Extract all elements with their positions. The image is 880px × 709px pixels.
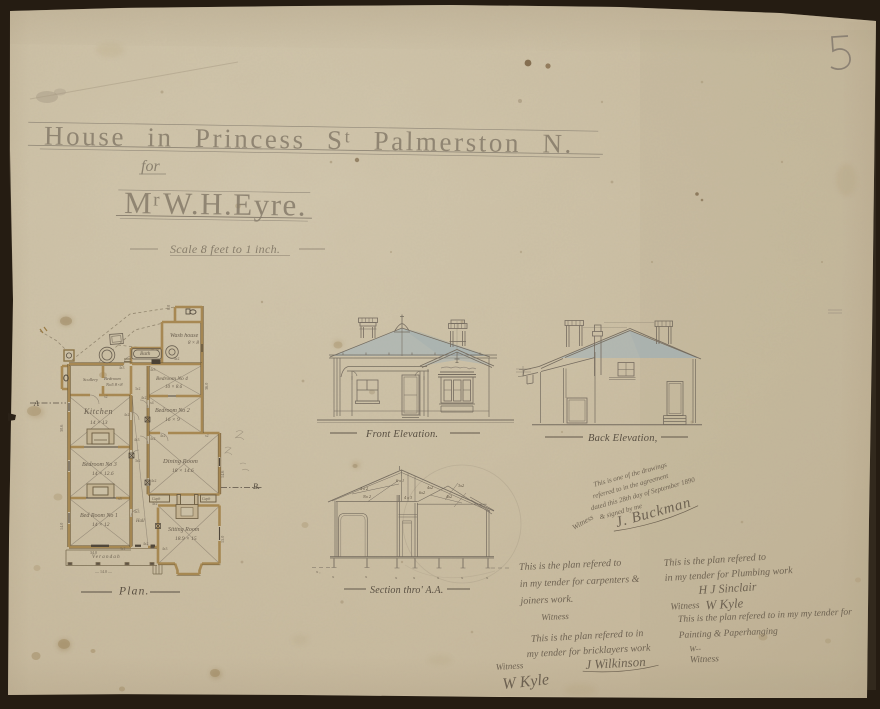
svg-text:14 × 12: 14 × 12 [92, 521, 110, 528]
svg-text:Witness: Witness [541, 611, 569, 622]
svg-text:Sitting Room: Sitting Room [168, 527, 200, 533]
svg-text:14 × 13: 14 × 13 [90, 419, 108, 426]
svg-text:Hall: Hall [135, 519, 145, 524]
svg-text:4x2: 4x2 [152, 502, 158, 506]
svg-text:6x2: 6x2 [419, 490, 425, 495]
svg-text:14.6: 14.6 [220, 471, 225, 478]
svg-text:3x2: 3x2 [135, 459, 141, 463]
svg-text:— 14.0 —: — 14.0 — [94, 569, 113, 574]
svg-text:4x3: 4x3 [162, 547, 168, 551]
svg-text:Bed Room No 1: Bed Room No 1 [80, 513, 118, 519]
svg-text:Front Elevation.: Front Elevation. [365, 429, 438, 440]
svg-text:4x2: 4x2 [124, 413, 130, 417]
svg-text:4x2: 4x2 [141, 396, 147, 400]
svg-text:Bath: Bath [140, 351, 151, 357]
svg-text:Back Elevation,: Back Elevation, [588, 433, 657, 444]
svg-text:8.0: 8.0 [166, 305, 171, 310]
svg-text:W Kyle: W Kyle [705, 595, 744, 612]
svg-text:x4: x4 [150, 401, 154, 405]
svg-text:Section thro' A.A.: Section thro' A.A. [370, 585, 444, 596]
svg-text:Wash house: Wash house [170, 333, 199, 339]
svg-text:Witness: Witness [670, 601, 700, 613]
svg-text:Scale 8 feet to 1 inch.: Scale 8 feet to 1 inch. [170, 242, 280, 256]
svg-text:14 × 12.6: 14 × 12.6 [92, 470, 114, 477]
svg-text:36.0: 36.0 [204, 383, 209, 390]
svg-text:16 × 9: 16 × 9 [165, 417, 180, 423]
svg-text:4x2: 4x2 [143, 542, 149, 546]
svg-text:34.0: 34.0 [90, 550, 97, 555]
svg-text:4 x 3: 4 x 3 [404, 495, 412, 500]
svg-text:3x2: 3x2 [458, 483, 464, 488]
svg-text:Cupb: Cupb [152, 497, 160, 501]
svg-text:4x2: 4x2 [174, 357, 180, 361]
svg-text:Dining Room: Dining Room [162, 458, 198, 465]
svg-text:Witness: Witness [495, 660, 524, 672]
svg-text:4x2: 4x2 [446, 494, 452, 499]
svg-text:4x2: 4x2 [160, 434, 166, 438]
svg-text:Kitchen: Kitchen [83, 407, 113, 416]
svg-text:8 × 8: 8 × 8 [188, 341, 199, 346]
svg-text:3x2: 3x2 [120, 547, 126, 551]
svg-text:No 2: No 2 [362, 494, 371, 499]
svg-text:4x2: 4x2 [151, 479, 157, 483]
svg-text:15.0: 15.0 [220, 536, 225, 543]
svg-text:4 x 2: 4 x 2 [360, 486, 368, 491]
svg-text:Bedroom No 4: Bedroom No 4 [156, 375, 188, 382]
svg-text:Verandah: Verandah [92, 555, 121, 560]
svg-text:x2: x2 [205, 434, 209, 438]
svg-text:30.6: 30.6 [59, 425, 64, 432]
svg-text:B.: B. [253, 482, 260, 491]
svg-text:Witness: Witness [690, 654, 720, 665]
svg-text:Bedroom: Bedroom [104, 376, 121, 381]
svg-text:for: for [141, 158, 160, 175]
svg-text:No5 8×8: No5 8×8 [105, 382, 123, 387]
svg-text:Cupb: Cupb [202, 497, 210, 501]
svg-text:4x3: 4x3 [150, 368, 156, 372]
svg-text:A: A [33, 399, 39, 408]
svg-text:4x3: 4x3 [134, 438, 140, 442]
svg-text:4x2: 4x2 [427, 485, 433, 490]
svg-text:Scullery: Scullery [83, 377, 99, 382]
svg-text:x3: x3 [118, 497, 122, 501]
svg-text:14.0: 14.0 [59, 523, 64, 530]
svg-text:18 × 14.6: 18 × 14.6 [172, 467, 194, 474]
svg-text:Bedroom No 2: Bedroom No 2 [155, 408, 190, 414]
svg-text:x2: x2 [104, 395, 108, 399]
svg-text:6 x 1: 6 x 1 [396, 478, 404, 483]
svg-text:4x2: 4x2 [150, 437, 156, 441]
svg-text:3x2: 3x2 [135, 387, 141, 391]
svg-text:Plan.: Plan. [118, 586, 150, 598]
svg-text:18.9 × 15: 18.9 × 15 [175, 536, 197, 542]
svg-text:4x3: 4x3 [134, 510, 140, 514]
svg-text:4x3: 4x3 [119, 366, 125, 370]
svg-text:Bedroom No 3: Bedroom No 3 [82, 462, 117, 468]
svg-text:10 × 8.6: 10 × 8.6 [165, 385, 183, 390]
svg-text:W--: W-- [689, 644, 701, 654]
